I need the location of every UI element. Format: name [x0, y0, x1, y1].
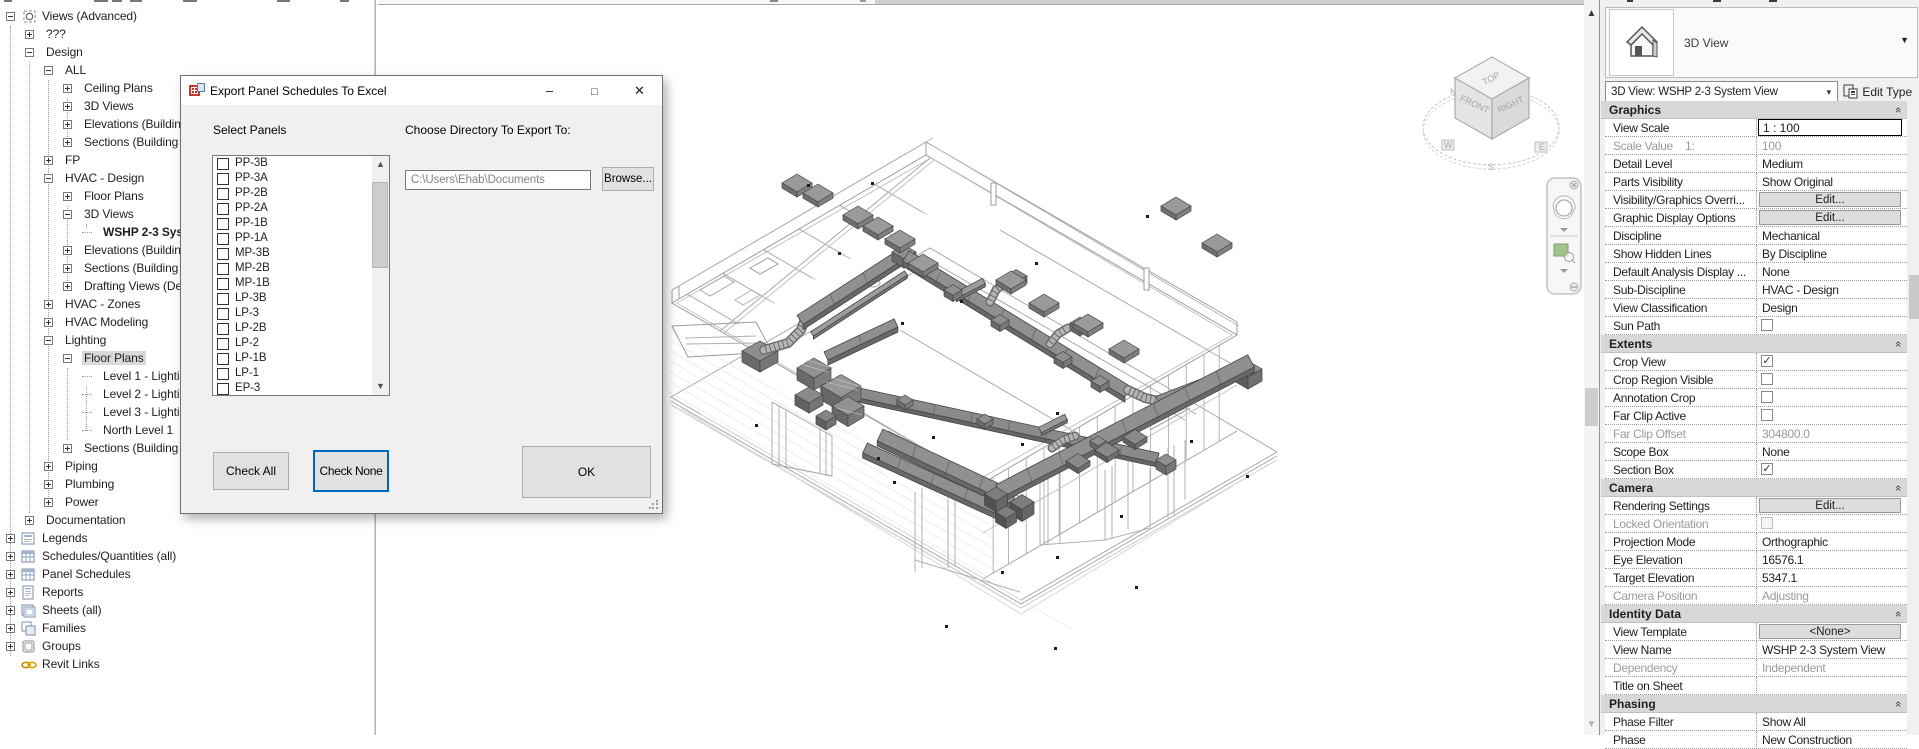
svg-text:E: E	[1539, 142, 1545, 152]
svg-text:W: W	[1444, 140, 1453, 150]
svg-text:S: S	[1488, 162, 1494, 172]
